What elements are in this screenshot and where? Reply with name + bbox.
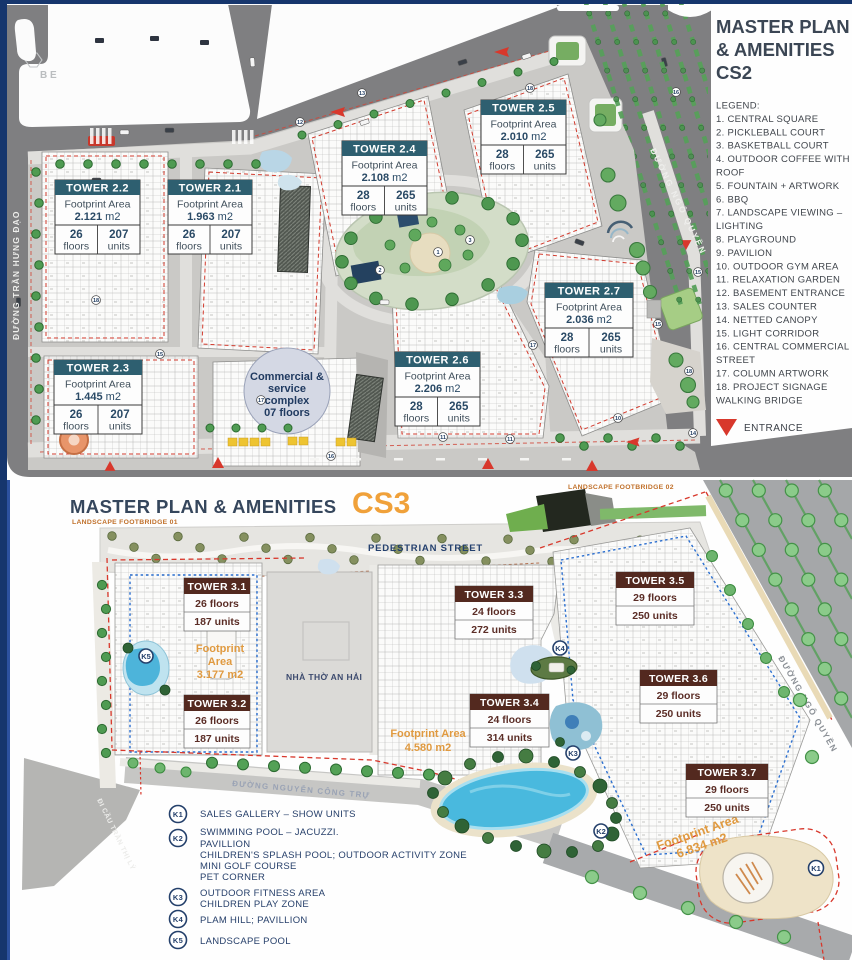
svg-text:15: 15: [695, 270, 701, 276]
svg-text:floors: floors: [350, 202, 376, 214]
svg-text:15. LIGHT CORRIDOR: 15. LIGHT CORRIDOR: [716, 328, 819, 339]
svg-text:floors: floors: [489, 161, 515, 173]
svg-text:TOWER 2.3: TOWER 2.3: [67, 363, 130, 375]
svg-text:units: units: [220, 241, 242, 253]
svg-text:MINI GOLF COURSE: MINI GOLF COURSE: [200, 861, 297, 872]
svg-text:26: 26: [183, 229, 196, 241]
svg-text:TOWER 2.4: TOWER 2.4: [353, 144, 416, 156]
svg-text:250 units: 250 units: [704, 802, 750, 814]
svg-text:11. RELAXATION GARDEN: 11. RELAXATION GARDEN: [716, 275, 840, 286]
svg-text:314 units: 314 units: [487, 732, 533, 744]
svg-text:2.010 m2: 2.010 m2: [501, 131, 547, 143]
svg-text:ĐƯỜNG TRẦN HƯNG ĐẠO: ĐƯỜNG TRẦN HƯNG ĐẠO: [10, 210, 21, 340]
svg-text:floors: floors: [403, 413, 429, 425]
svg-text:Area: Area: [208, 656, 233, 668]
svg-text:28: 28: [496, 149, 509, 161]
svg-text:OUTDOOR FITNESS AREA: OUTDOOR FITNESS AREA: [200, 888, 326, 899]
svg-text:187 units: 187 units: [194, 616, 240, 628]
svg-text:18: 18: [527, 86, 533, 92]
svg-text:250 units: 250 units: [656, 708, 702, 720]
svg-text:207: 207: [109, 229, 128, 241]
svg-text:26 floors: 26 floors: [195, 598, 239, 610]
svg-text:Footprint Area: Footprint Area: [491, 119, 557, 131]
svg-text:LANDSCAPE FOOTBRIDGE 01: LANDSCAPE FOOTBRIDGE 01: [72, 519, 178, 526]
svg-text:PAVILLION: PAVILLION: [200, 839, 250, 850]
svg-text:29 floors: 29 floors: [633, 592, 677, 604]
svg-text:11: 11: [440, 435, 446, 441]
svg-text:TOWER 3.2: TOWER 3.2: [187, 698, 246, 710]
svg-text:7. LANDSCAPE VIEWING –: 7. LANDSCAPE VIEWING –: [716, 208, 843, 219]
svg-text:Footprint: Footprint: [196, 643, 245, 655]
svg-text:PET CORNER: PET CORNER: [200, 872, 265, 883]
svg-text:207: 207: [110, 409, 129, 421]
svg-text:K3: K3: [173, 893, 183, 902]
svg-text:SWIMMING POOL – JACUZZI.: SWIMMING POOL – JACUZZI.: [200, 827, 339, 838]
svg-text:9. PAVILION: 9. PAVILION: [716, 248, 772, 259]
svg-text:TOWER 3.4: TOWER 3.4: [480, 697, 539, 709]
svg-text:11: 11: [507, 437, 513, 443]
svg-text:units: units: [109, 421, 131, 433]
svg-text:265: 265: [449, 401, 469, 413]
svg-text:floors: floors: [554, 344, 580, 356]
svg-text:14: 14: [690, 431, 697, 437]
svg-text:TOWER 3.3: TOWER 3.3: [464, 589, 523, 601]
svg-text:K3: K3: [568, 749, 578, 758]
svg-text:MASTER PLAN & AMENITIES: MASTER PLAN & AMENITIES: [70, 496, 337, 517]
svg-text:18. PROJECT SIGNAGE: 18. PROJECT SIGNAGE: [716, 382, 828, 393]
svg-text:250 units: 250 units: [632, 610, 678, 622]
svg-text:& AMENITIES: & AMENITIES: [716, 39, 835, 60]
svg-text:K2: K2: [596, 827, 606, 836]
svg-text:1: 1: [436, 250, 439, 256]
svg-text:3: 3: [468, 238, 471, 244]
svg-text:TOWER 2.6: TOWER 2.6: [406, 355, 469, 367]
svg-text:1. CENTRAL SQUARE: 1. CENTRAL SQUARE: [716, 114, 818, 125]
svg-text:TOWER 2.1: TOWER 2.1: [179, 183, 242, 195]
svg-text:1.963 m2: 1.963 m2: [187, 211, 233, 223]
svg-text:complex: complex: [265, 395, 311, 407]
svg-text:K2: K2: [173, 834, 183, 843]
svg-text:13: 13: [359, 91, 365, 97]
svg-text:Footprint Area: Footprint Area: [390, 728, 466, 740]
svg-text:LANDSCAPE POOL: LANDSCAPE POOL: [200, 936, 291, 947]
svg-text:WALKING BRIDGE: WALKING BRIDGE: [716, 395, 803, 406]
svg-text:units: units: [108, 241, 130, 253]
svg-text:17. COLUMN ARTWORK: 17. COLUMN ARTWORK: [716, 369, 829, 380]
svg-text:2. PICKLEBALL COURT: 2. PICKLEBALL COURT: [716, 127, 825, 138]
svg-text:PEDESTRIAN STREET: PEDESTRIAN STREET: [368, 543, 483, 554]
svg-text:Footprint Area: Footprint Area: [65, 199, 131, 211]
svg-text:26: 26: [70, 229, 83, 241]
svg-text:15: 15: [157, 352, 163, 358]
svg-text:12: 12: [297, 120, 303, 126]
svg-text:265: 265: [535, 149, 555, 161]
svg-text:NHÀ THỜ AN HẢI: NHÀ THỜ AN HẢI: [286, 671, 362, 682]
svg-text:K1: K1: [811, 864, 821, 873]
svg-text:STREET: STREET: [716, 355, 755, 366]
svg-text:SALES GALLERY – SHOW UNITS: SALES GALLERY – SHOW UNITS: [200, 809, 356, 820]
svg-text:26 floors: 26 floors: [195, 715, 239, 727]
svg-text:Footprint Area: Footprint Area: [405, 371, 471, 383]
svg-text:ENTRANCE: ENTRANCE: [744, 423, 803, 434]
svg-text:3.177 m2: 3.177 m2: [197, 669, 243, 681]
svg-text:K4: K4: [173, 915, 184, 924]
svg-text:265: 265: [396, 190, 416, 202]
svg-text:MASTER PLAN: MASTER PLAN: [716, 16, 850, 37]
svg-text:2.121 m2: 2.121 m2: [75, 211, 121, 223]
svg-text:07 floors: 07 floors: [264, 407, 310, 419]
svg-text:TOWER 3.6: TOWER 3.6: [649, 673, 708, 685]
svg-text:272 units: 272 units: [471, 624, 517, 636]
svg-text:187 units: 187 units: [194, 733, 240, 745]
svg-text:LIGHTING: LIGHTING: [716, 221, 763, 232]
svg-text:24 floors: 24 floors: [472, 606, 516, 618]
svg-text:K4: K4: [555, 644, 565, 653]
svg-text:ROOF: ROOF: [716, 168, 745, 179]
svg-text:265: 265: [601, 332, 621, 344]
svg-text:Commercial &: Commercial &: [250, 371, 324, 383]
svg-text:6. BBQ: 6. BBQ: [716, 194, 748, 205]
svg-text:CS3: CS3: [352, 487, 410, 520]
svg-text:K5: K5: [173, 936, 183, 945]
svg-text:18: 18: [686, 369, 692, 375]
svg-text:B E: B E: [40, 70, 57, 81]
svg-text:TOWER 2.7: TOWER 2.7: [558, 286, 621, 298]
svg-text:16: 16: [673, 90, 679, 96]
svg-text:24 floors: 24 floors: [488, 714, 532, 726]
svg-text:floors: floors: [63, 241, 89, 253]
svg-text:14. NETTED CANOPY: 14. NETTED CANOPY: [716, 315, 818, 326]
svg-text:5. FOUNTAIN + ARTWORK: 5. FOUNTAIN + ARTWORK: [716, 181, 840, 192]
svg-text:28: 28: [357, 190, 370, 202]
svg-text:13. SALES COUNTER: 13. SALES COUNTER: [716, 302, 817, 313]
svg-text:K1: K1: [173, 810, 183, 819]
svg-text:17: 17: [258, 398, 264, 404]
svg-text:1.445 m2: 1.445 m2: [75, 391, 121, 403]
svg-text:2.206 m2: 2.206 m2: [415, 383, 461, 395]
svg-text:Footprint Area: Footprint Area: [556, 302, 622, 314]
svg-text:Footprint Area: Footprint Area: [177, 199, 243, 211]
svg-text:4. OUTDOOR COFFEE WITH: 4. OUTDOOR COFFEE WITH: [716, 154, 850, 165]
svg-text:floors: floors: [63, 421, 89, 433]
svg-text:K5: K5: [141, 652, 151, 661]
svg-text:TOWER 3.5: TOWER 3.5: [625, 575, 684, 587]
svg-text:Footprint Area: Footprint Area: [352, 160, 418, 172]
svg-text:units: units: [448, 413, 470, 425]
svg-text:TOWER 2.2: TOWER 2.2: [66, 183, 129, 195]
svg-text:18: 18: [93, 298, 99, 304]
svg-text:TOWER 3.7: TOWER 3.7: [697, 767, 756, 779]
svg-text:CS2: CS2: [716, 62, 752, 83]
svg-text:12. BASEMENT ENTRANCE: 12. BASEMENT ENTRANCE: [716, 288, 845, 299]
svg-text:CHILDREN PLAY ZONE: CHILDREN PLAY ZONE: [200, 899, 309, 910]
svg-text:TOWER 3.1: TOWER 3.1: [187, 581, 246, 593]
svg-text:16: 16: [328, 454, 334, 460]
svg-text:floors: floors: [176, 241, 202, 253]
svg-text:Footprint Area: Footprint Area: [65, 379, 131, 391]
svg-text:207: 207: [221, 229, 240, 241]
svg-text:17: 17: [530, 343, 536, 349]
svg-text:28: 28: [410, 401, 423, 413]
svg-text:29 floors: 29 floors: [705, 784, 749, 796]
svg-text:16. CENTRAL COMMERCIAL: 16. CENTRAL COMMERCIAL: [716, 342, 849, 353]
svg-text:TOWER 2.5: TOWER 2.5: [492, 103, 555, 115]
svg-text:LEGEND:: LEGEND:: [716, 101, 760, 112]
svg-text:units: units: [600, 344, 622, 356]
svg-text:28: 28: [561, 332, 574, 344]
svg-text:26: 26: [70, 409, 83, 421]
svg-text:29 floors: 29 floors: [657, 690, 701, 702]
svg-text:2: 2: [378, 268, 381, 274]
svg-text:15: 15: [655, 322, 661, 328]
svg-text:units: units: [395, 202, 417, 214]
svg-text:4.580 m2: 4.580 m2: [405, 742, 451, 754]
svg-text:10: 10: [615, 416, 621, 422]
svg-text:3. BASKETBALL COURT: 3. BASKETBALL COURT: [716, 141, 829, 152]
svg-text:service: service: [268, 383, 306, 395]
svg-text:units: units: [534, 161, 556, 173]
svg-text:8. PLAYGROUND: 8. PLAYGROUND: [716, 235, 796, 246]
svg-text:CHILDREN'S SPLASH POOL; OUTDOO: CHILDREN'S SPLASH POOL; OUTDOOR ACTIVITY…: [200, 850, 467, 861]
svg-text:2.108 m2: 2.108 m2: [362, 172, 408, 184]
svg-text:2.036 m2: 2.036 m2: [566, 314, 612, 326]
svg-text:10. OUTDOOR GYM AREA: 10. OUTDOOR GYM AREA: [716, 261, 839, 272]
svg-text:PLAM HILL; PAVILLION: PLAM HILL; PAVILLION: [200, 915, 308, 926]
